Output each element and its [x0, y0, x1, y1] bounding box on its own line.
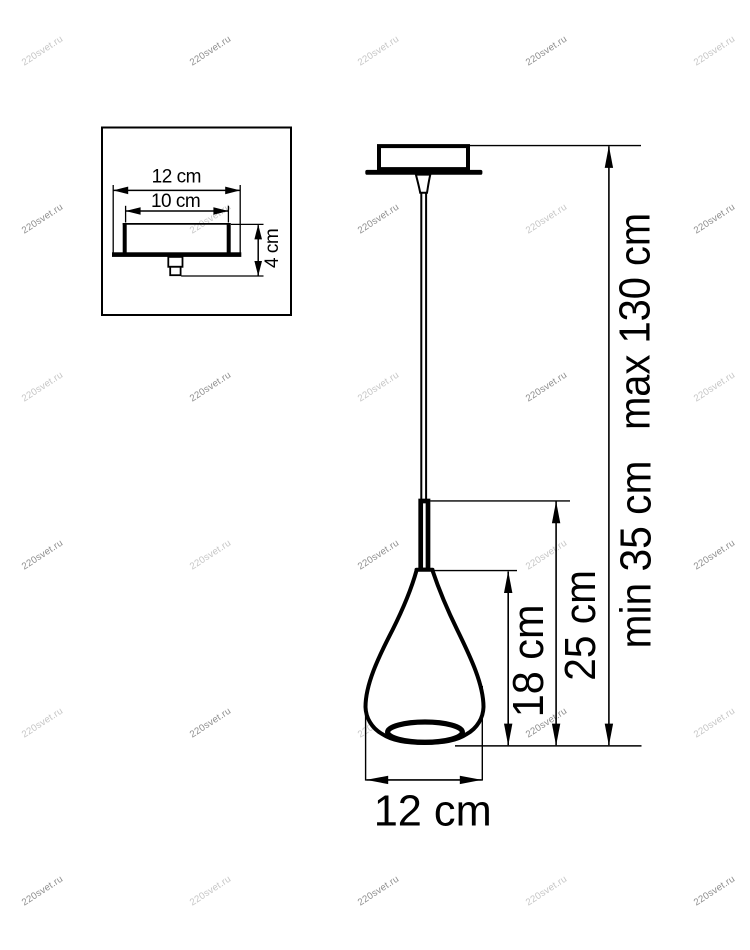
- svg-text:220svet.ru: 220svet.ru: [524, 202, 569, 237]
- svg-text:220svet.ru: 220svet.ru: [524, 370, 569, 405]
- svg-text:220svet.ru: 220svet.ru: [692, 34, 737, 69]
- svg-text:220svet.ru: 220svet.ru: [188, 706, 233, 741]
- svg-text:4 cm: 4 cm: [262, 229, 283, 268]
- svg-text:18 cm: 18 cm: [504, 605, 553, 718]
- svg-text:220svet.ru: 220svet.ru: [188, 34, 233, 69]
- svg-text:220svet.ru: 220svet.ru: [188, 874, 233, 909]
- svg-text:220svet.ru: 220svet.ru: [356, 202, 401, 237]
- svg-text:220svet.ru: 220svet.ru: [20, 706, 65, 741]
- svg-text:220svet.ru: 220svet.ru: [692, 202, 737, 237]
- svg-text:220svet.ru: 220svet.ru: [692, 874, 737, 909]
- svg-text:220svet.ru: 220svet.ru: [524, 874, 569, 909]
- svg-text:220svet.ru: 220svet.ru: [20, 370, 65, 405]
- svg-text:10 cm: 10 cm: [151, 191, 200, 212]
- svg-text:min 35 cm: min 35 cm: [612, 461, 661, 649]
- svg-text:220svet.ru: 220svet.ru: [188, 538, 233, 573]
- svg-text:max 130 cm: max 130 cm: [611, 213, 660, 430]
- svg-text:220svet.ru: 220svet.ru: [356, 370, 401, 405]
- svg-text:220svet.ru: 220svet.ru: [692, 370, 737, 405]
- svg-text:12 cm: 12 cm: [152, 166, 201, 187]
- svg-text:220svet.ru: 220svet.ru: [20, 538, 65, 573]
- svg-text:220svet.ru: 220svet.ru: [188, 370, 233, 405]
- svg-text:220svet.ru: 220svet.ru: [356, 538, 401, 573]
- svg-text:220svet.ru: 220svet.ru: [20, 874, 65, 909]
- svg-text:220svet.ru: 220svet.ru: [356, 34, 401, 69]
- svg-text:220svet.ru: 220svet.ru: [356, 874, 401, 909]
- svg-text:220svet.ru: 220svet.ru: [692, 538, 737, 573]
- svg-text:25 cm: 25 cm: [556, 570, 605, 681]
- svg-text:220svet.ru: 220svet.ru: [524, 538, 569, 573]
- svg-text:220svet.ru: 220svet.ru: [524, 34, 569, 69]
- svg-text:220svet.ru: 220svet.ru: [20, 34, 65, 69]
- svg-text:12 cm: 12 cm: [374, 787, 492, 836]
- svg-text:220svet.ru: 220svet.ru: [692, 706, 737, 741]
- svg-text:220svet.ru: 220svet.ru: [20, 202, 65, 237]
